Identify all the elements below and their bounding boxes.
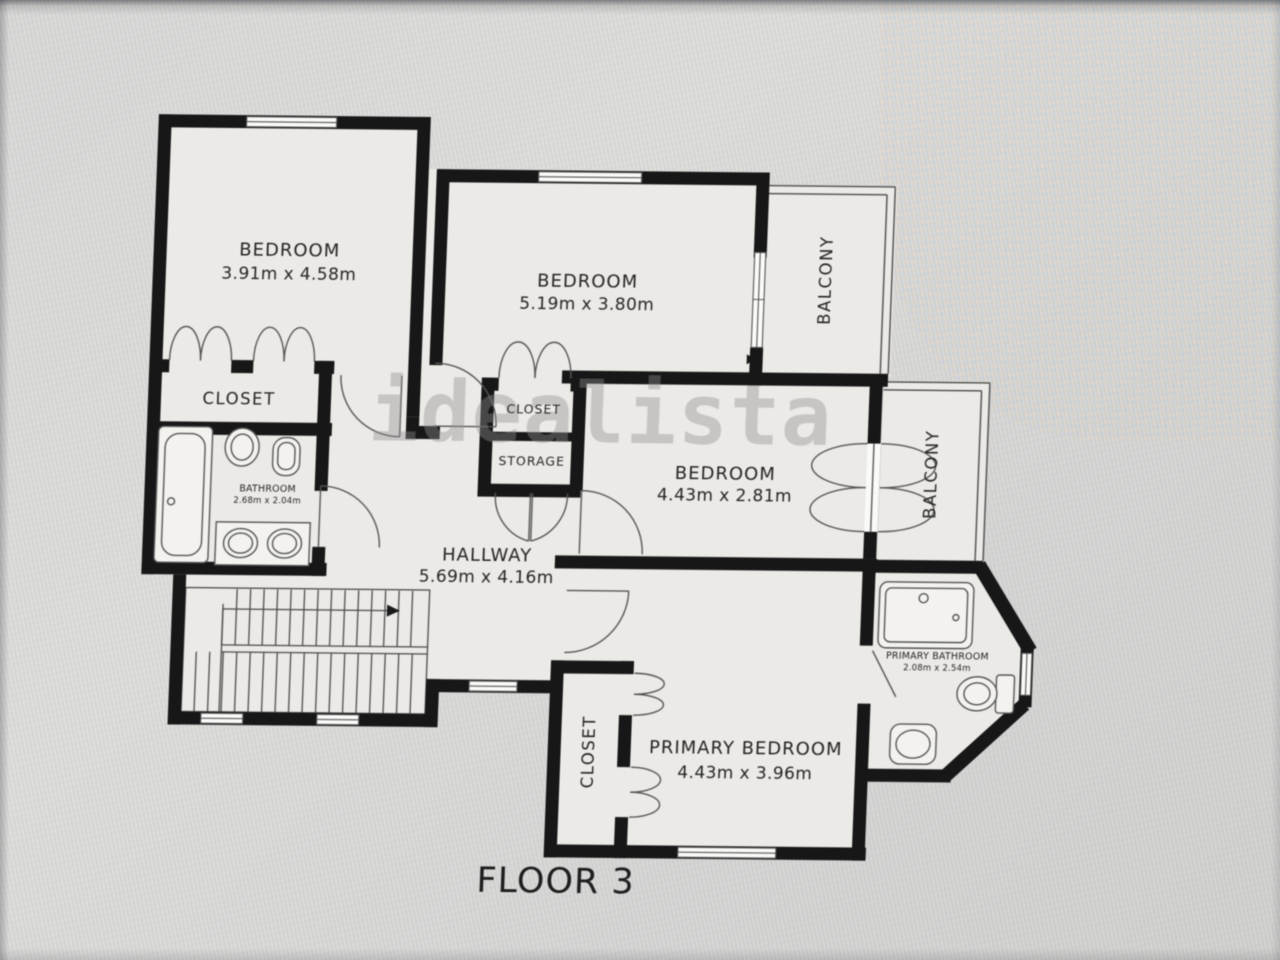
bedroom3-label: BEDROOM — [674, 463, 776, 485]
window-stairs-2 — [317, 714, 359, 724]
window-bedroom1-top — [246, 117, 336, 128]
double-sink-vanity — [215, 522, 311, 566]
floor-plan-drawing — [0, 0, 1280, 960]
bathroom-dimensions: 2.68m x 2.04m — [233, 496, 301, 507]
window-bedroom2-top — [538, 172, 641, 183]
primary-bathroom-dimensions: 2.08m x 2.54m — [903, 663, 971, 674]
primary-toilet — [956, 675, 1014, 714]
balcony-top-label: BALCONY — [815, 235, 837, 324]
window-primary-bathroom — [1020, 653, 1032, 695]
bedroom1-label: BEDROOM — [239, 240, 341, 262]
bedroom3-dimensions: 4.43m x 2.81m — [657, 485, 793, 506]
bedroom2-dimensions: 5.19m x 3.80m — [519, 294, 655, 315]
bathroom-label: BATHROOM — [239, 484, 296, 496]
idealista-watermark: idealista — [367, 362, 835, 465]
window-hallway — [469, 681, 517, 691]
primary-sink — [889, 724, 937, 764]
floor-plan-photo: idealista BEDROOM 3.91m x 4.58m BEDROOM … — [0, 0, 1280, 960]
hallway-dimensions: 5.69m x 4.16m — [418, 567, 554, 588]
closet-primary-label: CLOSET — [578, 715, 600, 788]
floor-title: FLOOR 3 — [476, 861, 636, 903]
primary-bathroom-label: PRIMARY BATHROOM — [886, 650, 989, 662]
window-stairs-1 — [201, 713, 243, 723]
window-primary-bedroom — [678, 847, 776, 858]
bathtub — [154, 426, 213, 563]
floor-plan: idealista BEDROOM 3.91m x 4.58m BEDROOM … — [0, 0, 1280, 960]
bidet — [272, 437, 300, 475]
balcony-right-label: BALCONY — [920, 430, 942, 519]
primary-bedroom-dimensions: 4.43m x 3.96m — [677, 763, 813, 784]
bedroom1-dimensions: 3.91m x 4.58m — [221, 264, 357, 285]
hallway-label: HALLWAY — [442, 545, 533, 567]
closet-bedroom1-label: CLOSET — [202, 389, 276, 409]
shower — [878, 582, 975, 649]
storage-label: STORAGE — [498, 453, 565, 469]
closet-hall-label: CLOSET — [506, 401, 561, 417]
primary-bedroom-label: PRIMARY BEDROOM — [649, 737, 843, 760]
toilet — [224, 428, 259, 466]
bedroom2-label: BEDROOM — [537, 271, 639, 293]
